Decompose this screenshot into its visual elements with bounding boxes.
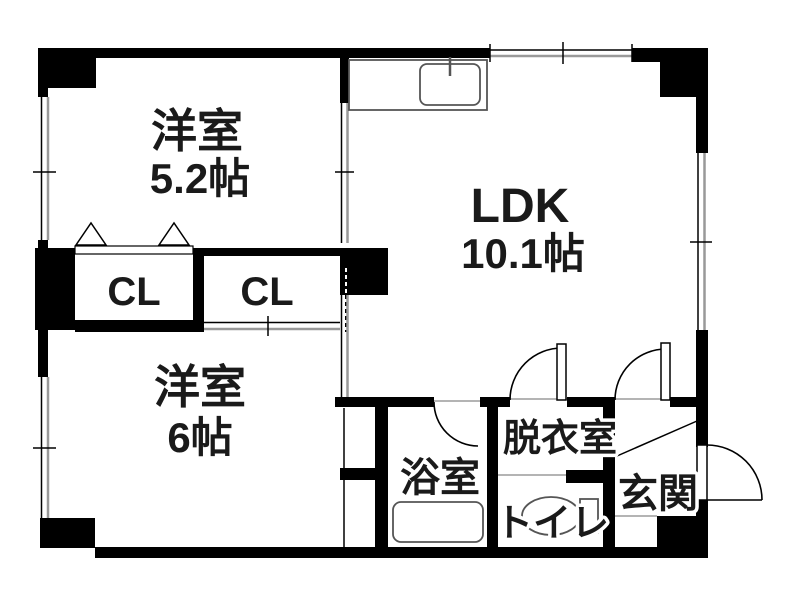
- wall-lower-top-d: [670, 397, 708, 407]
- wall-ps-divider: [340, 468, 388, 480]
- wall-right-upper: [696, 62, 708, 153]
- wall-top: [38, 48, 490, 58]
- wall-corner-bottom-left: [40, 518, 95, 548]
- floorplan-canvas: 洋室 5.2帖 LDK 10.1帖 CL CL 洋室 6帖 浴室 脱衣室 トイレ…: [0, 0, 800, 600]
- folding-door-icon: [76, 223, 106, 245]
- entrance-label: 玄関: [618, 472, 698, 516]
- front-door-arc: [707, 445, 762, 500]
- room1-label: 洋室: [151, 105, 243, 157]
- wall-cl-top: [193, 248, 340, 256]
- room2-size: 6帖: [167, 414, 232, 461]
- folding-door-track: [75, 246, 193, 254]
- room1-size: 5.2帖: [150, 155, 250, 202]
- door-arc-bathroom: [434, 402, 478, 446]
- wall-cl-left-bottom: [75, 320, 193, 332]
- front-door-leaf: [697, 445, 707, 500]
- wall-entrance-block: [657, 516, 697, 547]
- closet-right-label: CL: [240, 270, 293, 314]
- wall-cl-right-block: [340, 248, 388, 295]
- wall-lower-top-b: [480, 397, 510, 407]
- wall-cl-left-block: [35, 248, 75, 330]
- door-leaf-entrance-hall: [661, 343, 670, 400]
- room2-label: 洋室: [154, 361, 246, 413]
- door-leaf-dressing: [557, 344, 566, 400]
- folding-door-icon: [159, 223, 189, 245]
- bathtub: [393, 502, 483, 542]
- dressing-room-label: 脱衣室: [503, 417, 617, 460]
- wall-bottom: [95, 547, 708, 558]
- wall-corner-top-left-notch: [38, 88, 48, 97]
- wall-right-mid: [696, 330, 708, 447]
- floorplan-drawing: 洋室 5.2帖 LDK 10.1帖 CL CL 洋室 6帖 浴室 脱衣室 トイレ…: [0, 0, 800, 600]
- entrance-diagonal-line: [617, 421, 697, 456]
- wall-divider-top-stub: [340, 58, 349, 103]
- bathroom-label: 浴室: [400, 456, 480, 500]
- ldk-label: LDK: [471, 180, 570, 233]
- ldk-size: 10.1帖: [461, 230, 585, 277]
- wall-cl-divider: [193, 248, 204, 332]
- closet-left-label: CL: [107, 270, 160, 314]
- toilet-label: トイレ: [495, 503, 609, 545]
- door-arc-entrance-hall: [615, 349, 666, 400]
- wall-lower-top-a: [335, 397, 434, 407]
- door-arc-dressing: [510, 348, 562, 400]
